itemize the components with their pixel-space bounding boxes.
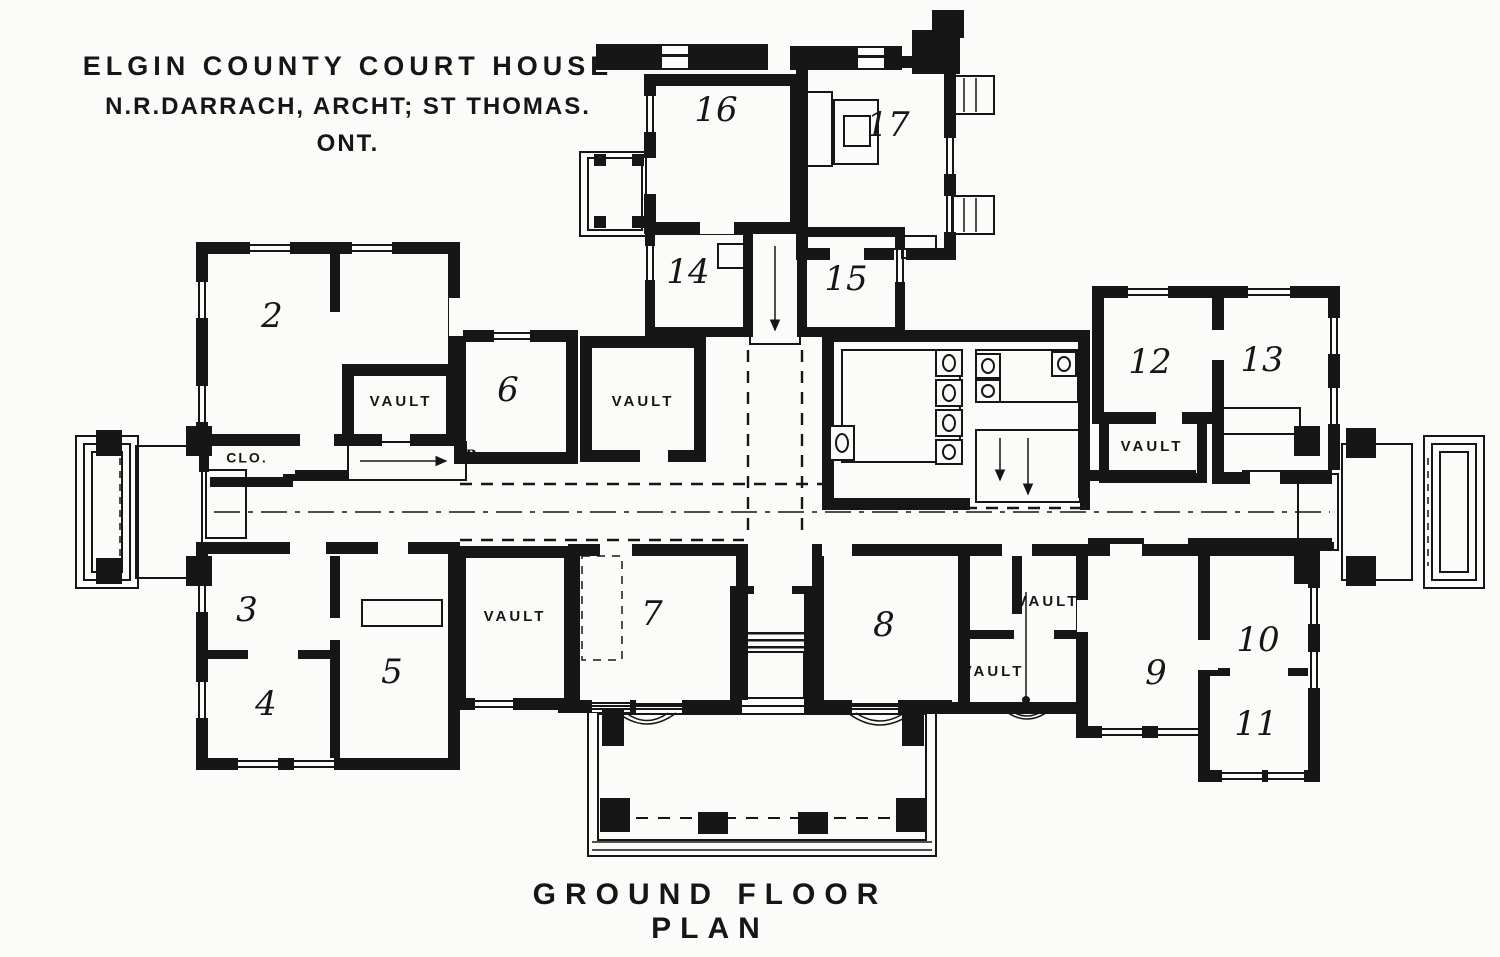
window (1102, 726, 1142, 738)
toilet-fixture (976, 380, 1000, 402)
closet-label: CLO. (226, 450, 267, 466)
window (894, 250, 906, 282)
entrance-mat-south (744, 652, 804, 698)
window (1308, 588, 1320, 624)
toilet-fixture (936, 410, 962, 436)
window (1128, 286, 1168, 298)
vault-label-b: VAULT (612, 393, 675, 410)
room-9-label: 9 (1145, 653, 1167, 693)
window (662, 46, 688, 68)
window (238, 758, 278, 770)
window (1268, 770, 1304, 782)
window (644, 96, 656, 132)
south-portico (588, 706, 936, 856)
window (1328, 388, 1340, 424)
room-7-label: 7 (641, 594, 663, 634)
drawing-sheet: ELGIN COUNTY COURT HOUSE N.R.DARRACH, AR… (0, 0, 1500, 957)
room-13-label: 13 (1240, 340, 1283, 380)
staircase-main-hall (750, 232, 800, 344)
window (294, 758, 334, 770)
north-side-porch (580, 152, 646, 236)
floor-plan: 2 3 4 5 6 7 8 9 10 11 12 13 14 15 16 17 … (0, 0, 1500, 957)
window (196, 386, 208, 422)
toilet-fixture (936, 380, 962, 406)
room-7-dashed-detail (582, 556, 622, 660)
window (944, 138, 956, 174)
window (1222, 770, 1262, 782)
room-9-walls (1082, 550, 1204, 732)
drawing-caption: GROUND FLOOR PLAN (470, 878, 950, 946)
toilet-fixture (936, 440, 962, 464)
vault-label-d: VAULT (1121, 438, 1184, 455)
up-label: UP (453, 448, 476, 464)
room-5-label: 5 (381, 652, 403, 692)
staircase-left-up (348, 442, 466, 480)
toilet-fixture (976, 354, 1000, 378)
vault-label-a: VAULT (370, 393, 433, 410)
vault-c-walls (460, 552, 570, 704)
sink-fixture (830, 426, 854, 460)
room-3-label: 3 (236, 590, 258, 630)
window (1308, 652, 1320, 688)
vault-label-c: VAULT (484, 608, 547, 625)
toilet-fixture (936, 350, 962, 376)
window (352, 242, 392, 254)
vault-label-e: VAULT (1017, 593, 1080, 610)
window (944, 196, 956, 232)
room-2-walls (202, 248, 454, 440)
room-14-label: 14 (666, 252, 709, 292)
window (196, 682, 208, 718)
room-12-label: 12 (1128, 342, 1171, 382)
window (644, 246, 656, 280)
room-17-walls (802, 62, 950, 254)
vault-label-f: VAULT (962, 663, 1025, 680)
room-10-label: 10 (1236, 620, 1279, 660)
window (1248, 286, 1290, 298)
window (196, 282, 208, 318)
room-6-label: 6 (497, 370, 519, 410)
room-2-label: 2 (260, 296, 283, 336)
toilet-fixture (1052, 352, 1076, 376)
room-17-label: 17 (866, 105, 910, 145)
window (494, 330, 530, 342)
room-8-label: 8 (873, 605, 895, 645)
window (858, 48, 884, 68)
room-16-label: 16 (694, 90, 737, 130)
west-porch (76, 426, 212, 588)
window (475, 698, 513, 710)
room-4-label: 4 (254, 684, 277, 724)
window (1158, 726, 1198, 738)
washroom-fixtures (830, 350, 1076, 464)
room-11-label: 11 (1234, 704, 1277, 744)
vaults-e-f-walls (964, 550, 1082, 708)
staircase-washroom-down (976, 430, 1080, 502)
room-15-label: 15 (824, 259, 867, 299)
east-porch (1294, 426, 1484, 588)
window (250, 242, 290, 254)
window (1328, 318, 1340, 354)
room-17-east-steps (952, 76, 994, 234)
